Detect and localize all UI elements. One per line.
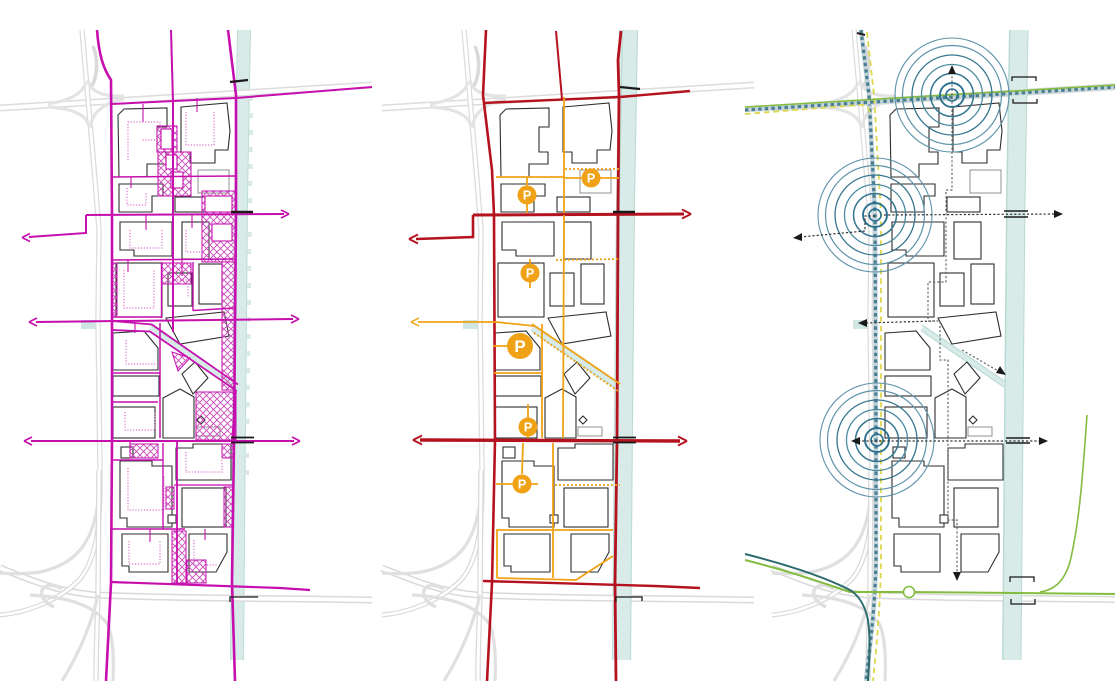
svg-text:P: P [514,337,525,356]
svg-text:P: P [523,189,531,203]
svg-text:P: P [526,267,534,281]
svg-text:P: P [524,421,532,435]
svg-text:P: P [518,478,526,492]
svg-text:P: P [587,172,595,186]
